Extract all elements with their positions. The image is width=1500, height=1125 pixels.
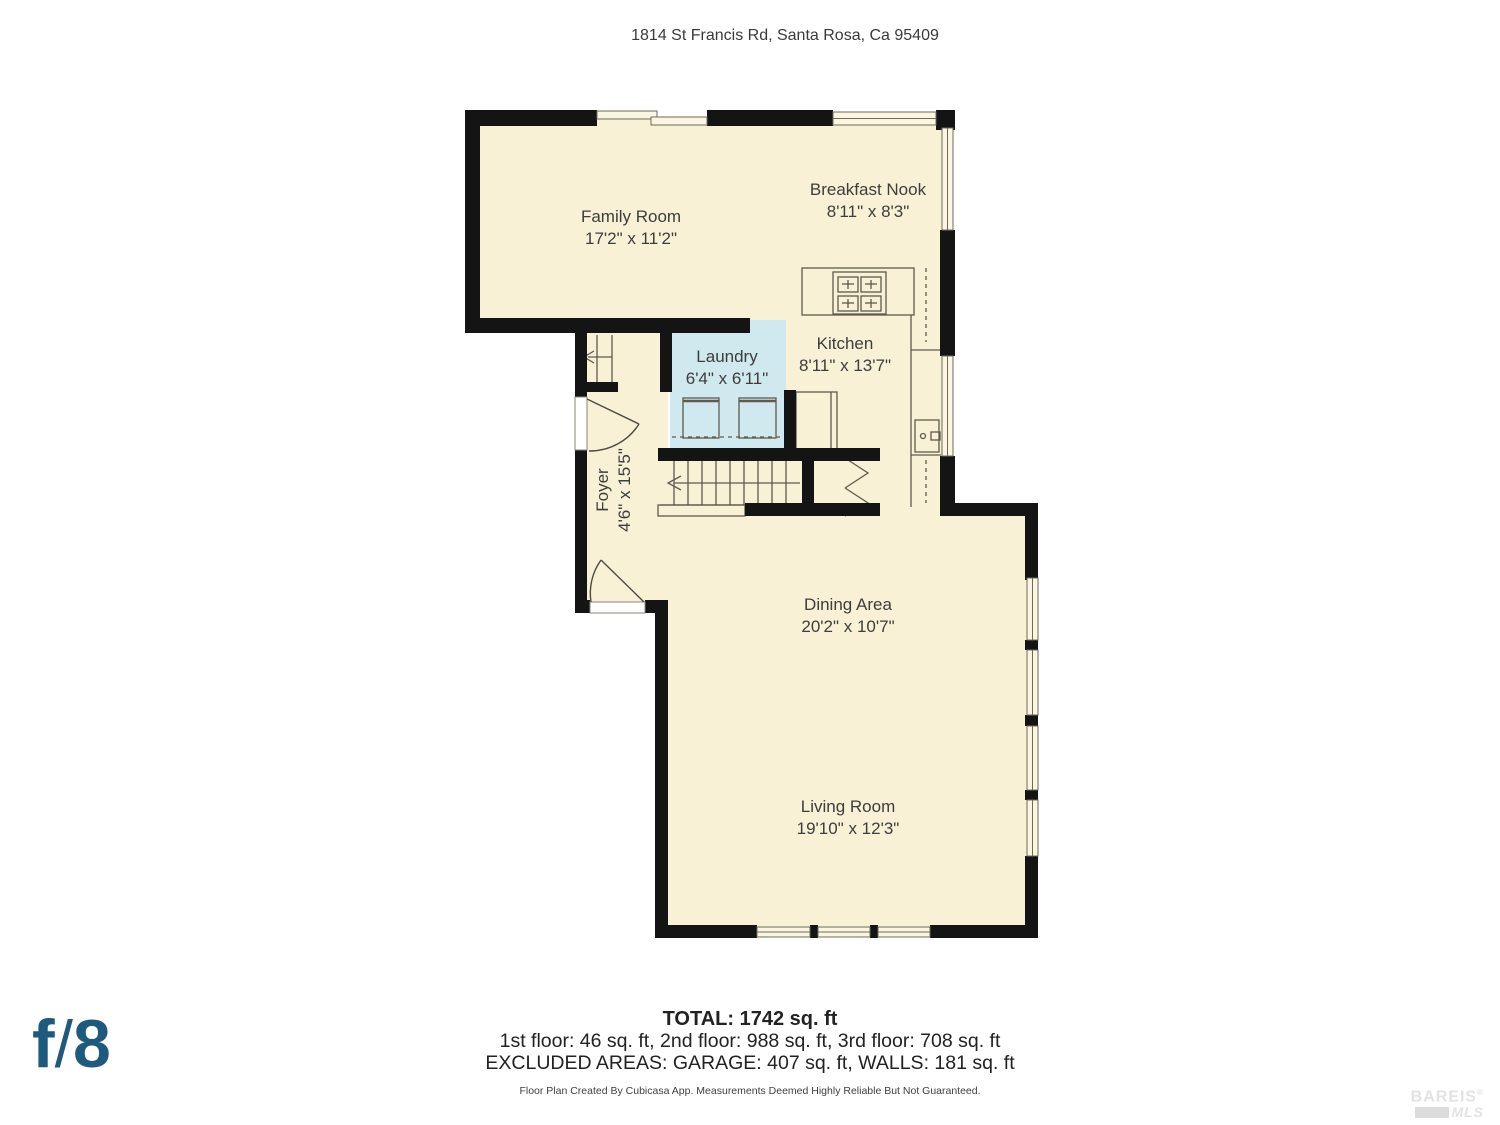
room-label-family-room: Family Room <box>581 207 681 226</box>
dining-living-area <box>660 455 1032 932</box>
room-label-kitchen: Kitchen <box>817 334 874 353</box>
bareis-mls-watermark: BAREIS® MLS <box>1411 1086 1484 1119</box>
room-dims-dining-area: 20'2" x 10'7" <box>801 617 894 636</box>
disclaimer-text: Floor Plan Created By Cubicasa App. Meas… <box>485 1085 1014 1097</box>
room-label-dining-area: Dining Area <box>804 595 892 614</box>
room-label-breakfast-nook: Breakfast Nook <box>810 180 927 199</box>
total-area: TOTAL: 1742 sq. ft <box>485 1008 1014 1030</box>
sliding-door-panel <box>597 111 657 119</box>
room-dims-breakfast-nook: 8'11" x 8'3" <box>827 202 910 221</box>
f8-logo-f: f <box>32 1006 53 1082</box>
mls-bar <box>1415 1107 1449 1118</box>
f8-logo: f/8 <box>32 1008 109 1080</box>
area-summary: TOTAL: 1742 sq. ft 1st floor: 46 sq. ft,… <box>485 1008 1014 1097</box>
room-label-foyer: Foyer <box>593 468 612 512</box>
room-dims-family-room: 17'2" x 11'2" <box>585 229 677 248</box>
front-door-leaf <box>590 602 645 613</box>
door-leaf <box>575 397 587 450</box>
family-breakfast-area <box>472 117 948 329</box>
mls-suffix: MLS <box>1451 1105 1484 1119</box>
room-dims-foyer: 4'6" x 15'5" <box>615 448 634 532</box>
floor-plan-page: 1814 St Francis Rd, Santa Rosa, Ca 95409 <box>0 0 1500 1125</box>
f8-logo-eight: 8 <box>73 1006 109 1082</box>
room-dims-kitchen: 8'11" x 13'7" <box>799 356 891 375</box>
room-label-laundry: Laundry <box>696 347 758 366</box>
floor-plan-drawing: Family Room 17'2" x 11'2" Breakfast Nook… <box>0 0 1500 1125</box>
room-dims-living-room: 19'10" x 12'3" <box>797 819 900 838</box>
f8-logo-slash: / <box>53 1007 73 1081</box>
sliding-door-panel <box>651 117 707 125</box>
registered-mark: ® <box>1477 1088 1484 1097</box>
room-dims-laundry: 6'4" x 6'11" <box>686 369 769 388</box>
room-label-living-room: Living Room <box>801 797 896 816</box>
floor-areas: 1st floor: 46 sq. ft, 2nd floor: 988 sq.… <box>485 1030 1014 1052</box>
excluded-areas: EXCLUDED AREAS: GARAGE: 407 sq. ft, WALL… <box>485 1052 1014 1074</box>
mls-name: BAREIS <box>1411 1088 1477 1105</box>
